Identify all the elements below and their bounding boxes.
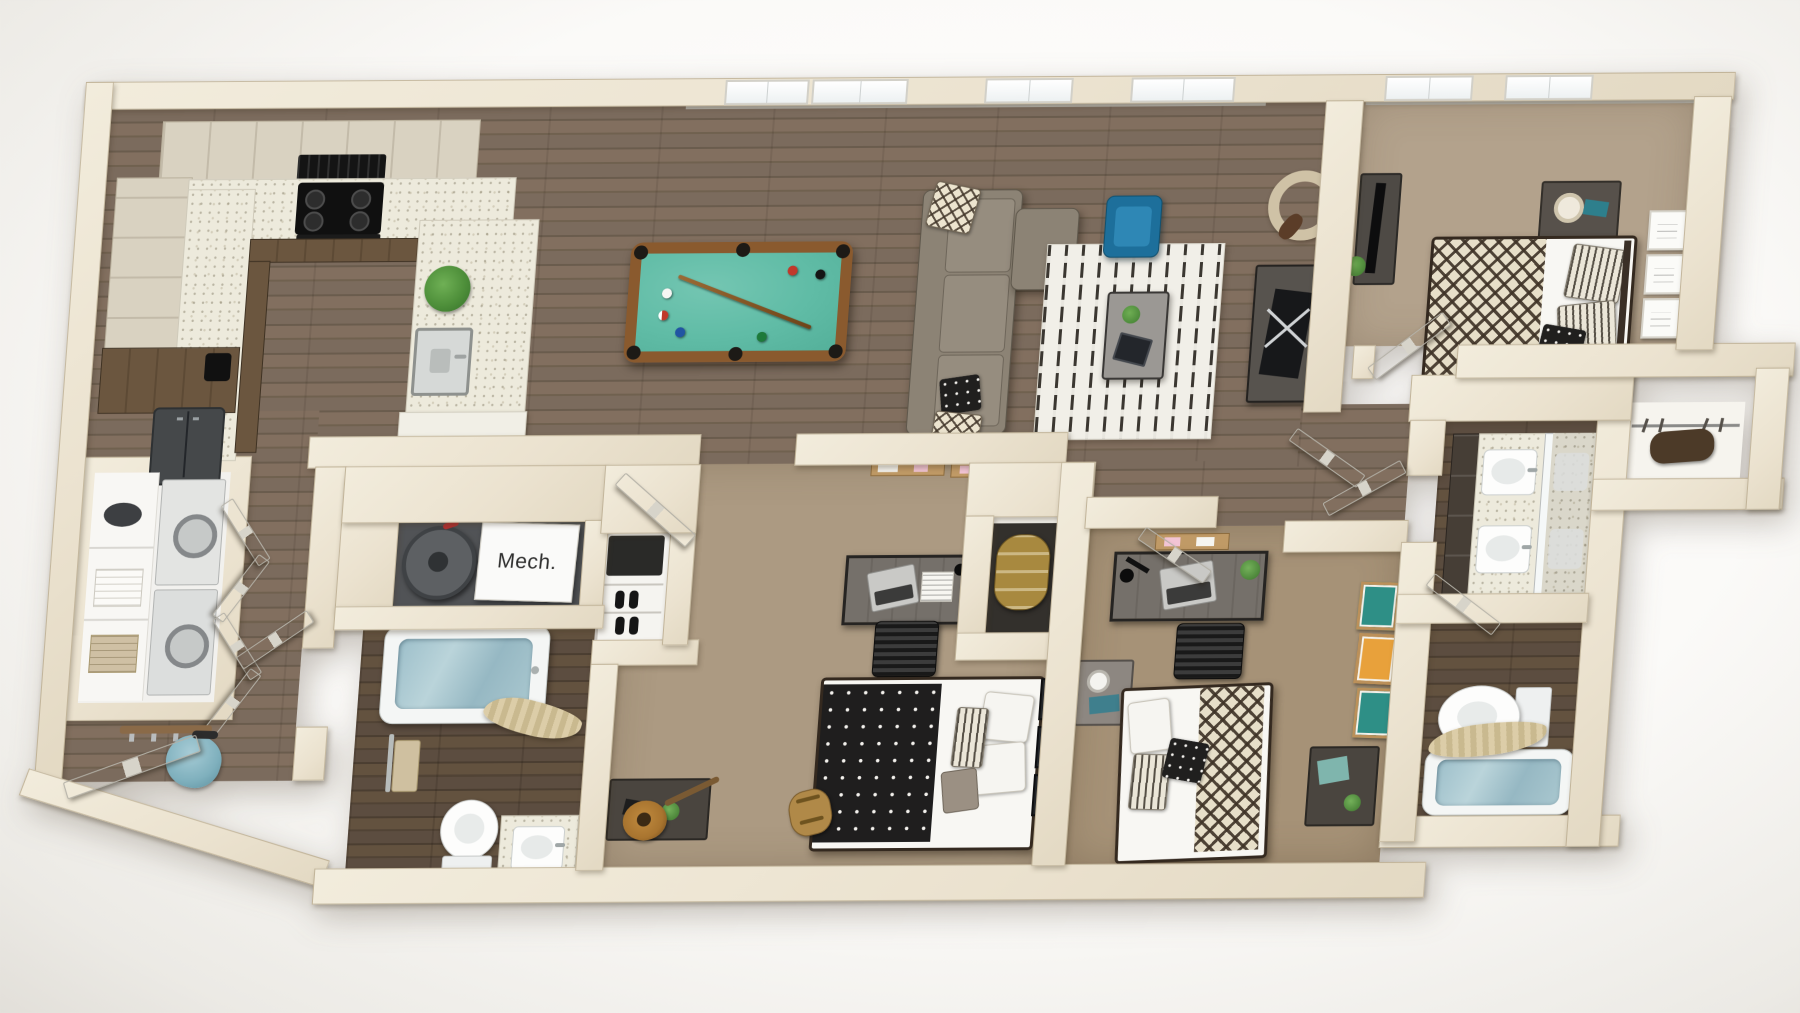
bedroom3-bed — [1114, 682, 1273, 864]
washer — [155, 479, 227, 585]
wall-south — [312, 862, 1427, 905]
closet-duffel-bag — [1650, 428, 1714, 465]
wall-bedroom3-north-b — [1282, 520, 1408, 553]
window-living-2 — [811, 79, 909, 105]
bedroom3-pillow-white — [1127, 697, 1172, 755]
bedroom3-desk-plant — [1239, 560, 1260, 580]
dryer — [146, 589, 218, 695]
shoe-2 — [629, 591, 639, 609]
wall-vanity-north — [1408, 373, 1634, 421]
mech-box: Mech. — [474, 522, 580, 603]
bedroom3-desk-lamp — [1119, 569, 1134, 583]
bedroom3-desk-chair — [1173, 623, 1245, 679]
storage-duffel-bag — [992, 534, 1052, 610]
towel-stack-white — [93, 569, 144, 607]
bathroom2-tub — [1421, 749, 1576, 816]
bedroom2-laptop — [866, 563, 919, 612]
closet-rod — [1632, 424, 1740, 428]
floor-plan-render: Mech. — [0, 0, 1800, 1013]
shoe-3 — [615, 617, 625, 635]
wall-bedroom3-north-a — [1084, 496, 1218, 529]
vanity-sink-2 — [1475, 525, 1533, 573]
bedroom3-books — [1089, 694, 1120, 714]
bedroom2-notebook — [920, 572, 954, 602]
window-living-4 — [1130, 77, 1236, 103]
wall-vanity-west-a — [1406, 420, 1446, 476]
sofa-pillow-black — [939, 374, 981, 415]
window-bedroom1-2 — [1504, 75, 1594, 101]
shoe-4 — [629, 617, 639, 635]
bedroom1-book — [1583, 199, 1610, 217]
shoe-1 — [615, 591, 625, 609]
wall-mech-north — [341, 465, 609, 524]
window-living-3 — [984, 78, 1074, 104]
mech-label: Mech. — [475, 523, 579, 602]
apartment-floor-plan: Mech. — [16, 71, 1800, 918]
coffee-table-plant — [1122, 306, 1141, 324]
bedroom1-frame-1 — [1647, 210, 1688, 250]
blue-accent-chair — [1102, 195, 1163, 257]
kitchen-sink — [410, 328, 473, 396]
shoe-rack-shelf-2 — [601, 611, 661, 613]
wall-bedroom1-south-b — [1455, 343, 1796, 379]
bedroom3-dresser-plant — [1343, 794, 1361, 811]
bedroom1-frame-3 — [1640, 298, 1681, 338]
coffee-table — [1101, 291, 1170, 379]
window-living-1 — [724, 80, 810, 106]
bedroom2-desk-chair — [871, 621, 939, 677]
shoe-closet-clothes — [606, 535, 665, 575]
decor-bowl — [103, 503, 143, 527]
bedroom2-bed — [808, 676, 1045, 851]
bedroom3-dresser — [1304, 746, 1380, 826]
vanity-sink-1 — [1481, 449, 1538, 495]
bedroom2-desk — [841, 555, 976, 626]
vanity-faucet-1 — [1527, 468, 1537, 472]
kitchen-faucet — [454, 355, 466, 359]
coffee-maker — [204, 353, 232, 381]
wall-greatroom-south-a — [307, 434, 701, 468]
bedroom3-diamond-throw — [1194, 685, 1265, 852]
cooktop — [295, 182, 385, 235]
bathroom1-towel — [391, 740, 421, 792]
bedroom1-lamp — [1553, 193, 1585, 223]
tablet — [1112, 332, 1153, 367]
bedroom1-pillow-striped-1 — [1563, 243, 1629, 304]
towel-stack-tan — [88, 635, 139, 673]
bathroom1-tub-faucet — [531, 666, 540, 674]
bedroom1-tv — [1365, 183, 1386, 273]
wall-hall-east-b — [292, 726, 328, 780]
vanity-faucet-2 — [1522, 545, 1532, 549]
wall-greatroom-south-b — [794, 432, 1068, 466]
shoe-rack-shelf-1 — [603, 583, 663, 585]
bedroom3-clock — [1086, 670, 1111, 693]
window-bedroom1-1 — [1384, 75, 1474, 101]
bedroom1-frame-2 — [1643, 254, 1684, 294]
bedroom2-pillow-taupe — [941, 767, 980, 814]
bathroom1-faucet — [555, 843, 565, 847]
bedroom3-teal-cloth — [1317, 756, 1349, 785]
wall-bathroom1-north — [333, 605, 605, 631]
